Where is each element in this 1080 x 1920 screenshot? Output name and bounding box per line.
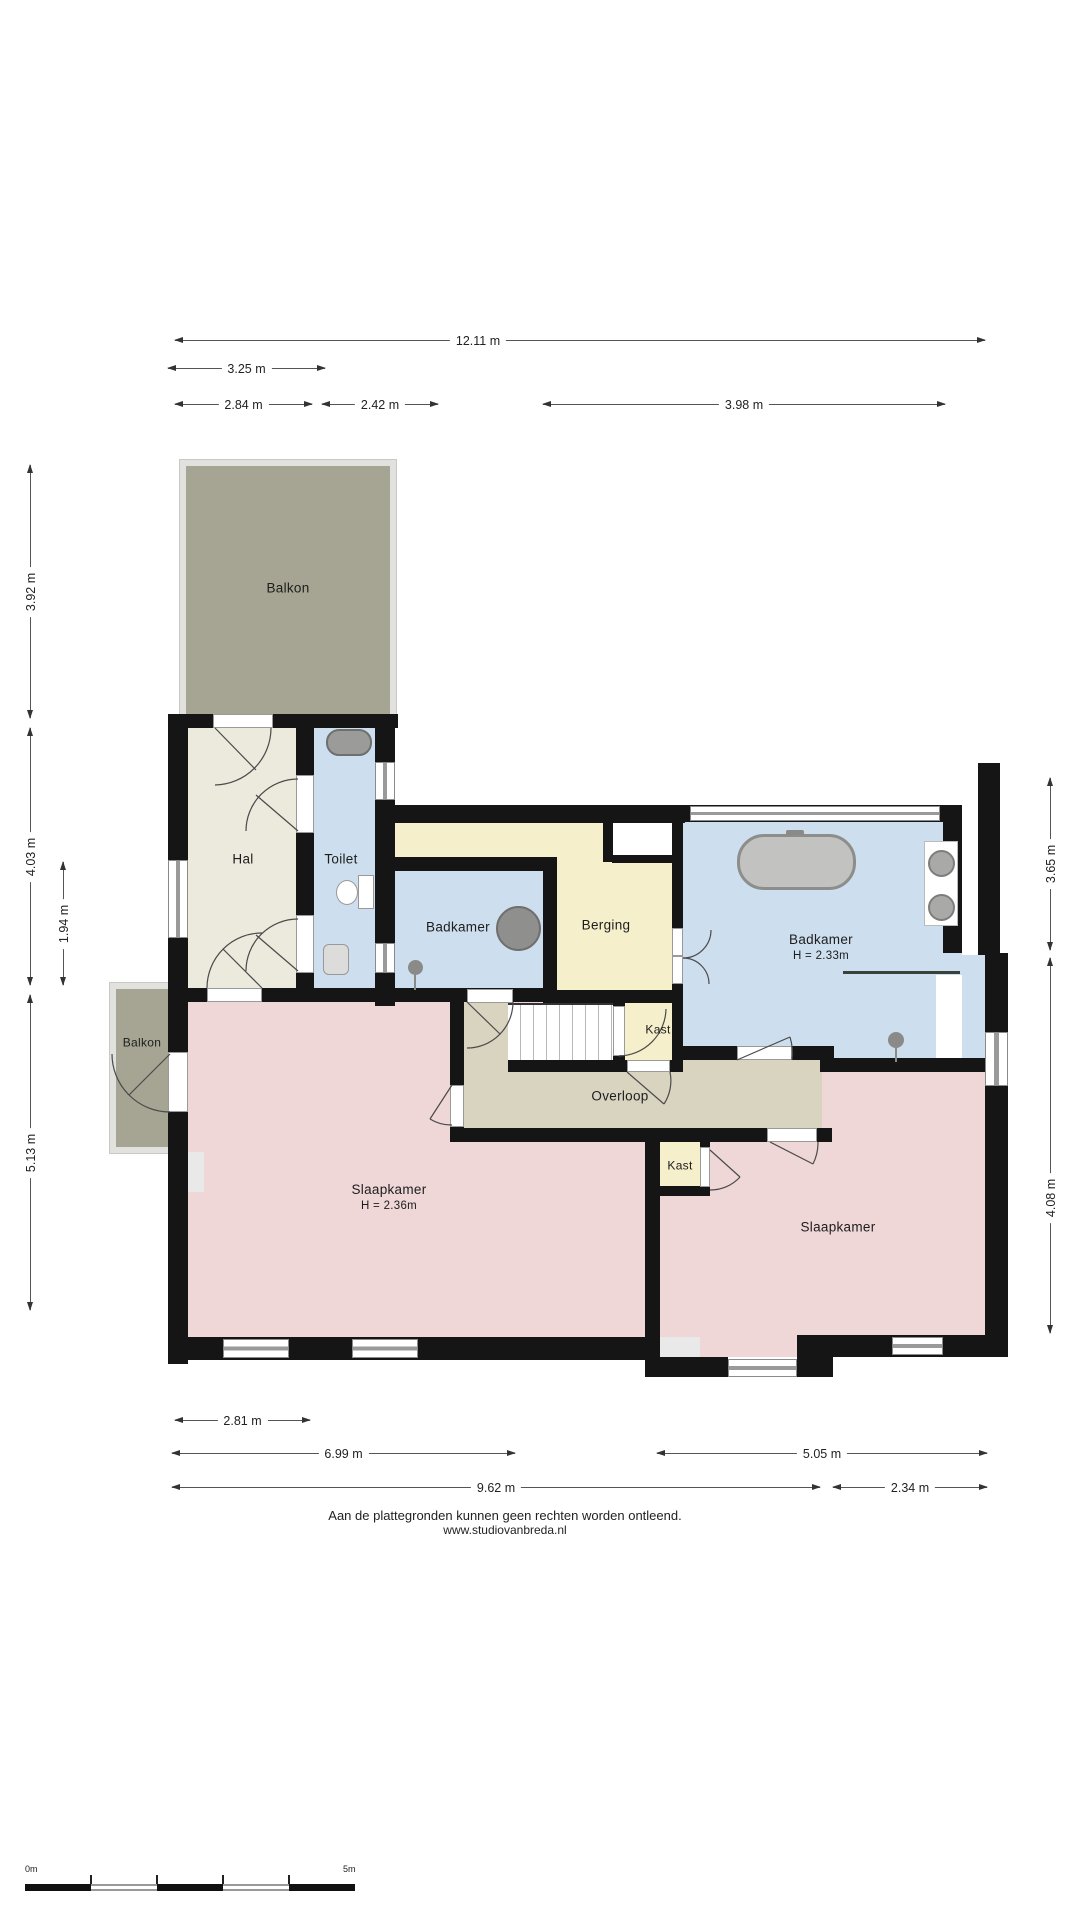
scale-tick (288, 1875, 290, 1884)
door-leaf (223, 949, 262, 988)
drain-stem (414, 974, 416, 990)
drain-stem (895, 1047, 897, 1062)
dimension-line: 1.94 m (63, 862, 64, 985)
scale-segment (91, 1884, 157, 1891)
dimension-label: 3.92 m (24, 566, 38, 616)
dimension-label: 3.98 m (719, 398, 769, 412)
room-label-kast-onder: Kast (667, 1158, 692, 1175)
dimension-label: 2.84 m (218, 398, 268, 412)
room-label-badkamer-groot: Badkamer H = 2.33m (789, 931, 853, 965)
scale-start-label: 0m (25, 1864, 38, 1874)
door-arc (683, 930, 711, 958)
scale-segment (223, 1884, 289, 1891)
scale-segment (25, 1884, 91, 1891)
door-arc (683, 958, 709, 984)
washbasin (928, 894, 955, 921)
door-leaf (256, 795, 298, 831)
toilet-bowl (336, 880, 358, 905)
door-leaf (737, 1037, 790, 1060)
dimension-label: 2.34 m (885, 1481, 935, 1495)
door-leaf (215, 728, 256, 770)
floorplan-canvas: Balkon Hal Toilet Badkamer Berging Badka… (0, 0, 1080, 1920)
dimension-label: 12.11 m (450, 334, 506, 348)
dimension-line: 2.81 m (175, 1420, 310, 1421)
scale-tick (222, 1875, 224, 1884)
dimension-line: 5.13 m (30, 995, 31, 1310)
drain-dot (888, 1032, 904, 1048)
door-leaf (256, 935, 298, 971)
room-label-badkamer-klein: Badkamer (426, 919, 490, 936)
room-label-toilet: Toilet (324, 851, 357, 868)
dimension-line: 4.03 m (30, 728, 31, 985)
door-arc (246, 919, 298, 971)
room-label-berging: Berging (582, 917, 631, 934)
footer-disclaimer: Aan de plattegronden kunnen geen rechten… (328, 1508, 681, 1537)
room-label-balkon-top: Balkon (266, 580, 309, 597)
scale-end-label: 5m (343, 1864, 356, 1874)
scale-segment (157, 1884, 223, 1891)
dimension-label: 2.42 m (355, 398, 405, 412)
dimension-line: 2.84 m (175, 404, 312, 405)
disclaimer-text: Aan de plattegronden kunnen geen rechten… (328, 1508, 681, 1523)
door-swing-arcs (0, 0, 1080, 1920)
room-label-slaapkamer-right: Slaapkamer (800, 1219, 875, 1236)
fountain-basin (323, 944, 349, 975)
shower-area (936, 975, 962, 1058)
dimension-label: 4.08 m (1044, 1173, 1058, 1223)
room-label-slaapkamer-left: Slaapkamer H = 2.36m (351, 1181, 426, 1215)
room-label-hal: Hal (232, 851, 253, 868)
dimension-line: 2.34 m (833, 1487, 987, 1488)
dimension-line: 12.11 m (175, 340, 985, 341)
scale-bar: 0m 5m (25, 1875, 355, 1891)
door-arc (710, 1177, 740, 1190)
website-text: www.studiovanbreda.nl (328, 1523, 681, 1537)
dimension-label: 5.13 m (24, 1127, 38, 1177)
toilet-tank (358, 875, 374, 909)
room-label-overloop: Overloop (591, 1088, 648, 1105)
dimension-line: 3.98 m (543, 404, 945, 405)
door-leaf (710, 1150, 740, 1177)
door-arc (430, 1119, 452, 1125)
door-leaf (430, 1085, 452, 1119)
dimension-label: 1.94 m (57, 898, 71, 948)
dimension-line: 2.42 m (322, 404, 438, 405)
shower-circle (496, 906, 541, 951)
scale-tick (156, 1875, 158, 1884)
dimension-label: 6.99 m (318, 1447, 368, 1461)
door-leaf (467, 1002, 500, 1034)
dimension-label: 9.62 m (471, 1481, 521, 1495)
dimension-line: 4.08 m (1050, 958, 1051, 1333)
shower-partition (843, 971, 960, 974)
dimension-line: 3.25 m (168, 368, 325, 369)
bathtub-faucet (786, 830, 804, 835)
door-leaf (770, 1142, 813, 1164)
drain-dot (408, 960, 423, 975)
dimension-line: 5.05 m (657, 1453, 987, 1454)
room-label-kast-boven: Kast (645, 1022, 670, 1039)
room-label-balkon-left: Balkon (123, 1035, 162, 1052)
dimension-label: 5.05 m (797, 1447, 847, 1461)
washbasin (928, 850, 955, 877)
sink (326, 729, 372, 756)
dimension-label: 4.03 m (24, 831, 38, 881)
dimension-label: 2.81 m (217, 1414, 267, 1428)
scale-segment (289, 1884, 355, 1891)
dimension-line: 3.65 m (1050, 778, 1051, 950)
dimension-label: 3.25 m (221, 362, 271, 376)
door-arc (246, 779, 298, 831)
dimension-label: 3.65 m (1044, 839, 1058, 889)
door-arc (813, 1142, 818, 1164)
door-leaf (129, 1054, 170, 1095)
scale-tick (90, 1875, 92, 1884)
dimension-line: 3.92 m (30, 465, 31, 718)
bathtub (737, 834, 856, 890)
dimension-line: 6.99 m (172, 1453, 515, 1454)
door-arc (664, 1072, 671, 1104)
door-arc (790, 1037, 792, 1060)
dimension-line: 9.62 m (172, 1487, 820, 1488)
